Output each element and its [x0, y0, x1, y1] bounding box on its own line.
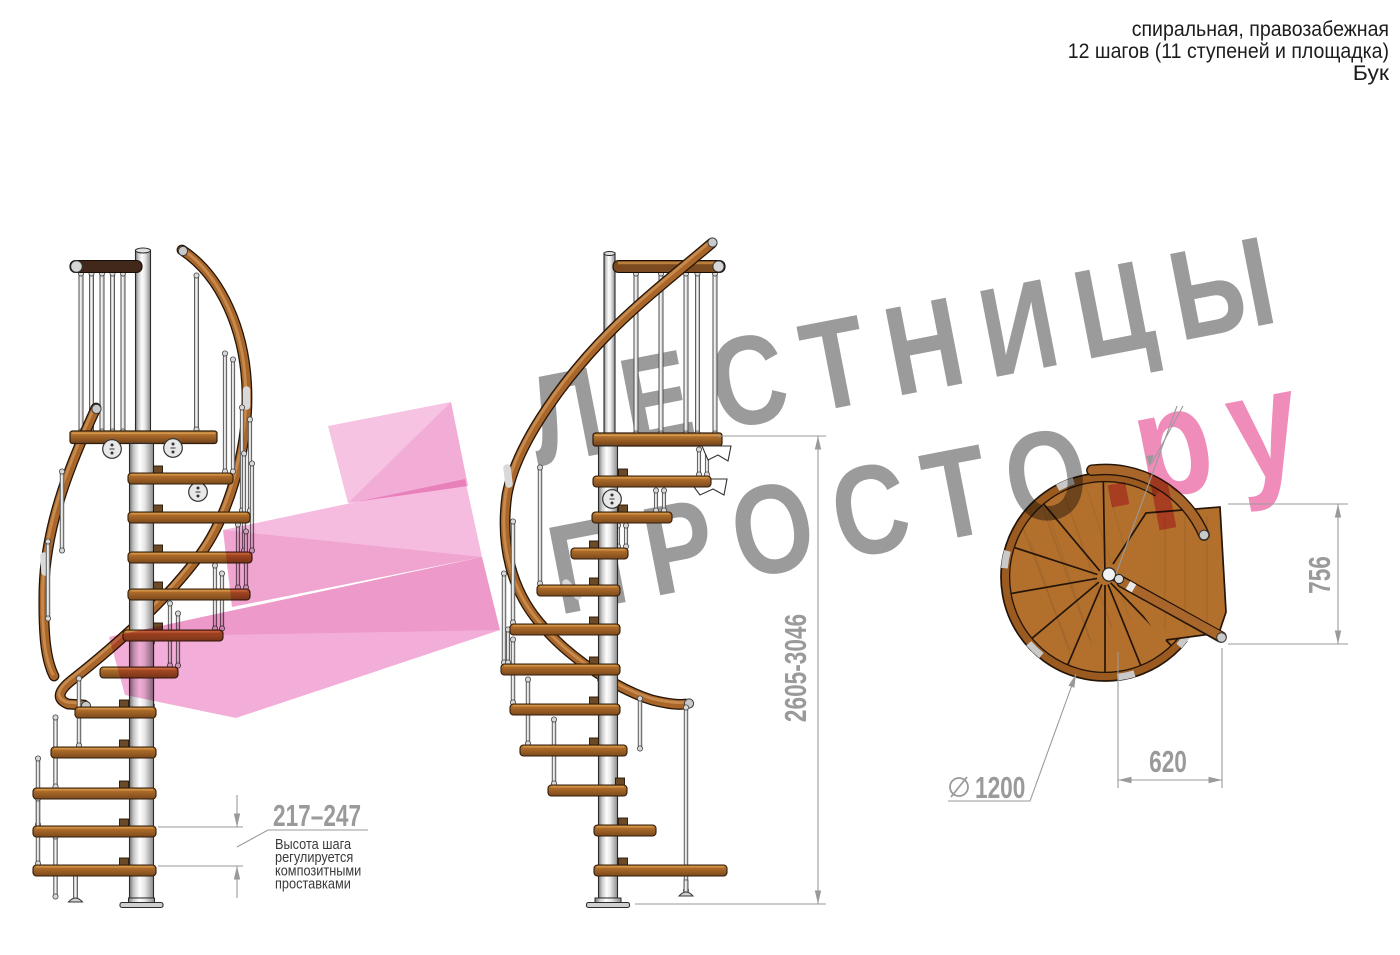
svg-text:217–247: 217–247: [273, 797, 361, 832]
svg-text:756: 756: [1301, 556, 1336, 594]
svg-text:1200: 1200: [975, 769, 1025, 804]
svg-text:Бук: Бук: [1353, 61, 1390, 85]
svg-text:спиральная, правозабежная: спиральная, правозабежная: [1132, 18, 1389, 41]
svg-text:2605-3046: 2605-3046: [777, 614, 812, 722]
svg-text:620: 620: [1149, 743, 1187, 778]
svg-text:12 шагов (11 ступеней и площад: 12 шагов (11 ступеней и площадка): [1068, 40, 1389, 63]
svg-text:Высота шагарегулируетсякомпози: Высота шагарегулируетсякомпозитнымипрост…: [275, 836, 361, 892]
